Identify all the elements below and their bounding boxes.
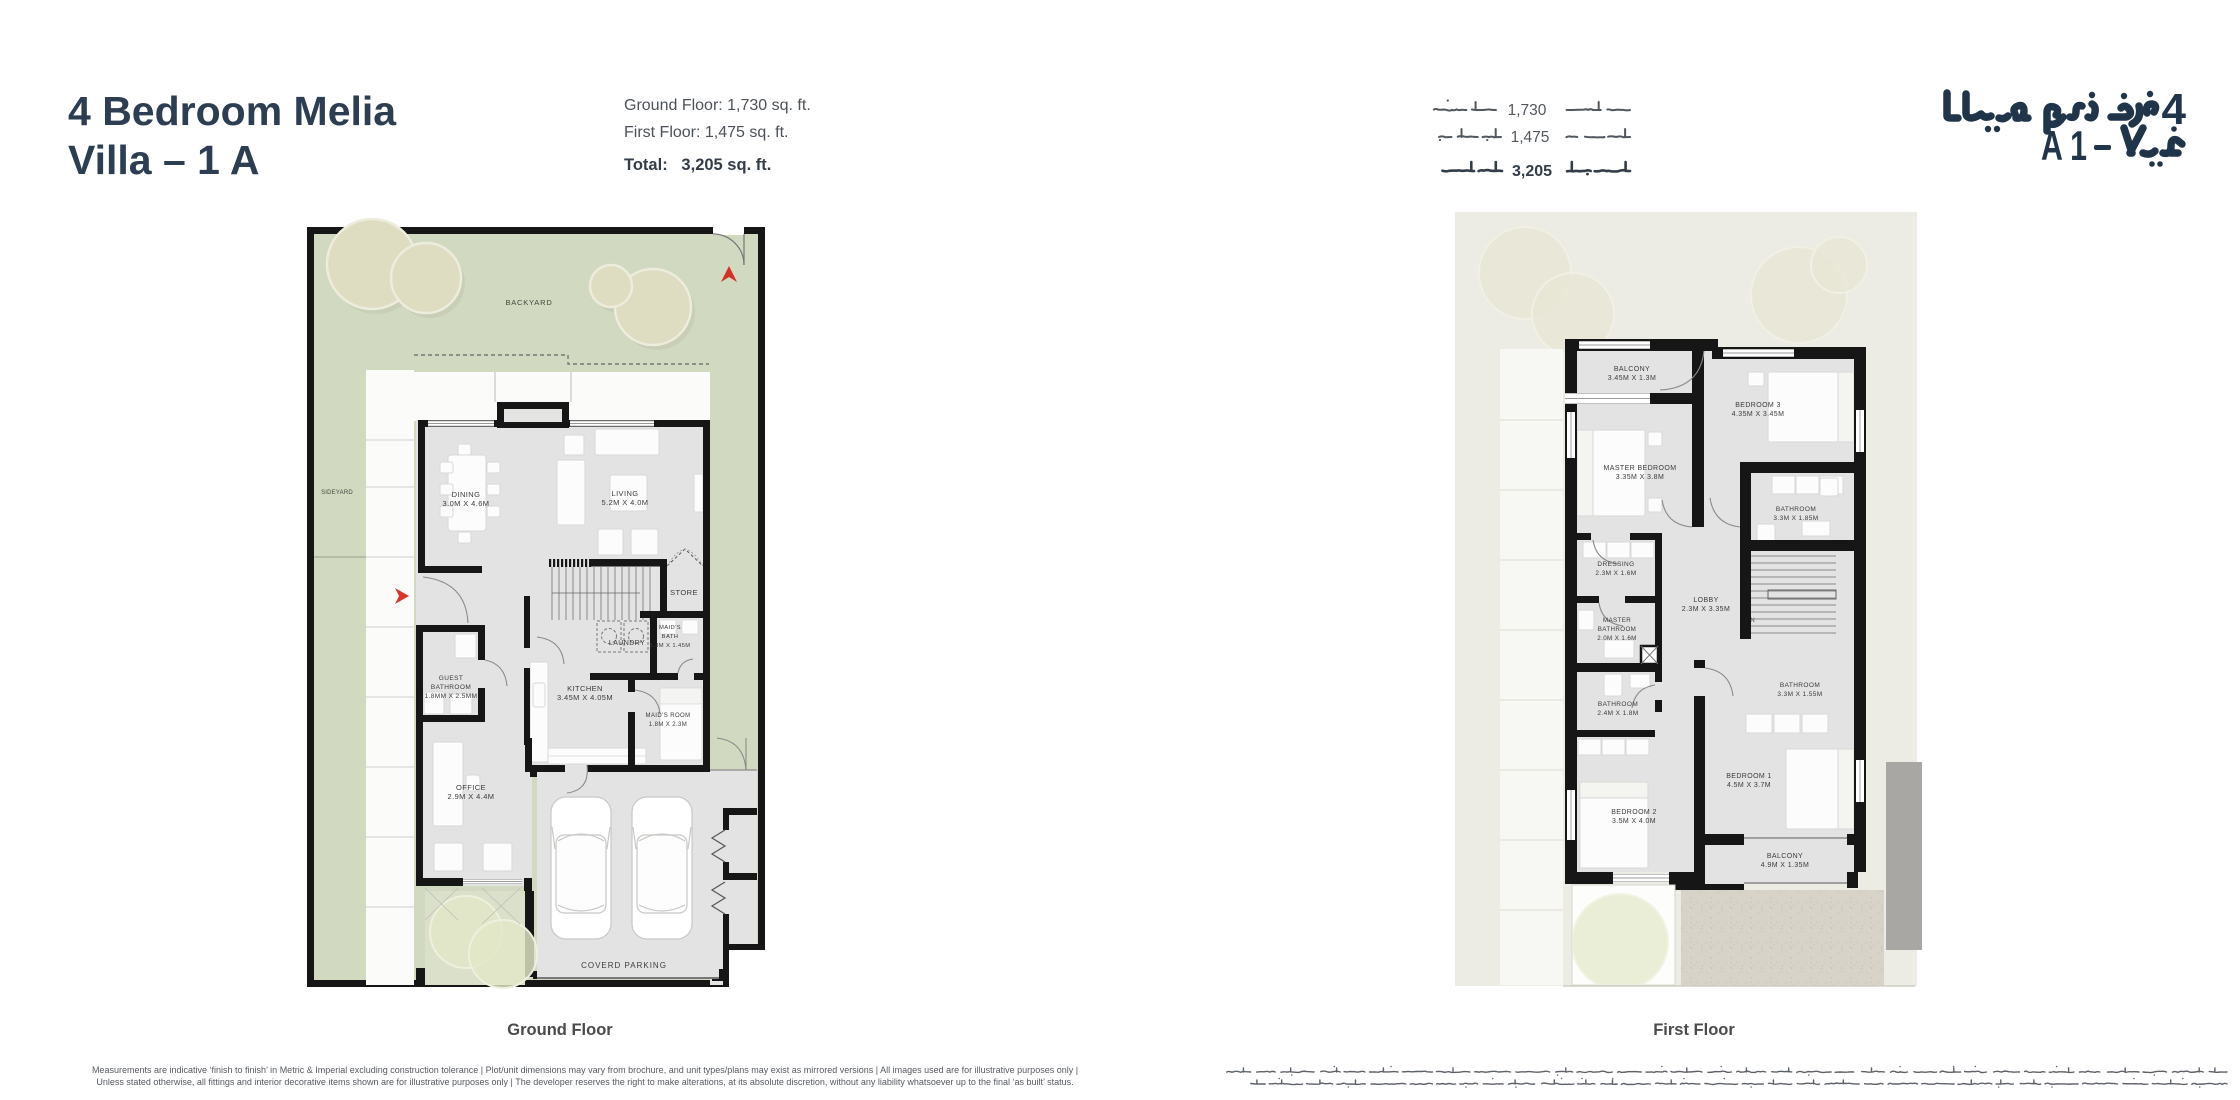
svg-text:STORE: STORE <box>670 588 698 597</box>
svg-text:BATH: BATH <box>662 634 679 640</box>
svg-text:4.35M X 3.45M: 4.35M X 3.45M <box>1732 411 1785 418</box>
svg-text:2.3M X 1.6M: 2.3M X 1.6M <box>1595 570 1636 577</box>
svg-text:3.3M X 1.85M: 3.3M X 1.85M <box>1773 515 1818 522</box>
svg-text:SIDEYARD: SIDEYARD <box>321 490 353 496</box>
svg-text:BATHROOM: BATHROOM <box>431 684 471 691</box>
svg-text:2.0M X 1.6M: 2.0M X 1.6M <box>1597 635 1636 642</box>
svg-text:MASTER: MASTER <box>1603 617 1631 624</box>
svg-text:3.0M X 4.6M: 3.0M X 4.6M <box>443 499 490 508</box>
svg-text:4.9M X 1.35M: 4.9M X 1.35M <box>1761 862 1809 869</box>
svg-text:BATHROOM: BATHROOM <box>1776 506 1816 513</box>
svg-text:BALCONY: BALCONY <box>1767 853 1803 860</box>
svg-text:OFFICE: OFFICE <box>456 783 486 792</box>
svg-text:MAID’S: MAID’S <box>659 625 681 631</box>
svg-text:1.8M X 2.3M: 1.8M X 2.3M <box>649 722 687 728</box>
svg-text:MAID’S ROOM: MAID’S ROOM <box>645 713 690 719</box>
svg-text:LIVING: LIVING <box>612 489 639 498</box>
svg-text:KITCHEN: KITCHEN <box>567 684 603 693</box>
svg-text:BATHROOM: BATHROOM <box>1598 701 1638 708</box>
svg-text:BEDROOM 3: BEDROOM 3 <box>1735 402 1781 409</box>
svg-text:BEDROOM 1: BEDROOM 1 <box>1726 773 1772 780</box>
svg-text:5.2M X 4.0M: 5.2M X 4.0M <box>602 498 649 507</box>
svg-text:LOBBY: LOBBY <box>1693 597 1718 604</box>
svg-text:LAUNDRY: LAUNDRY <box>609 640 645 647</box>
svg-text:1,730: 1,730 <box>1508 102 1547 119</box>
svg-text:MASTER BEDROOM: MASTER BEDROOM <box>1604 465 1677 472</box>
svg-text:BEDROOM 2: BEDROOM 2 <box>1611 809 1657 816</box>
svg-text:1.8MM X 2.5MM: 1.8MM X 2.5MM <box>425 693 478 700</box>
svg-text:1.3M X 1.45M: 1.3M X 1.45M <box>650 643 691 649</box>
svg-text:3.3M X 1.55M: 3.3M X 1.55M <box>1777 691 1822 698</box>
svg-text:2.4M X 1.8M: 2.4M X 1.8M <box>1597 710 1638 717</box>
svg-text:3.5M X 4.0M: 3.5M X 4.0M <box>1612 818 1656 825</box>
svg-text:COVERD PARKING: COVERD PARKING <box>581 961 667 970</box>
svg-text:1,475: 1,475 <box>1511 129 1550 146</box>
svg-text:3.45M X 4.05M: 3.45M X 4.05M <box>557 693 613 702</box>
svg-text:DINING: DINING <box>452 490 481 499</box>
svg-text:BATHROOM: BATHROOM <box>1780 682 1820 689</box>
svg-text:BATHROOM: BATHROOM <box>1598 626 1637 633</box>
svg-text:A 1: A 1 <box>2041 122 2087 169</box>
svg-text:BALCONY: BALCONY <box>1614 366 1650 373</box>
svg-text:3,205: 3,205 <box>1512 163 1552 180</box>
svg-text:2.3M X 3.35M: 2.3M X 3.35M <box>1682 606 1730 613</box>
svg-text:3.45M X 1.3M: 3.45M X 1.3M <box>1608 375 1656 382</box>
svg-text:2.9M X 4.4M: 2.9M X 4.4M <box>448 792 495 801</box>
svg-text:DRESSING: DRESSING <box>1597 561 1634 568</box>
svg-text:3.35M X 3.8M: 3.35M X 3.8M <box>1616 474 1664 481</box>
svg-text:4.5M X 3.7M: 4.5M X 3.7M <box>1727 782 1771 789</box>
svg-text:GUEST: GUEST <box>439 675 463 682</box>
svg-text:BACKYARD: BACKYARD <box>505 298 552 307</box>
